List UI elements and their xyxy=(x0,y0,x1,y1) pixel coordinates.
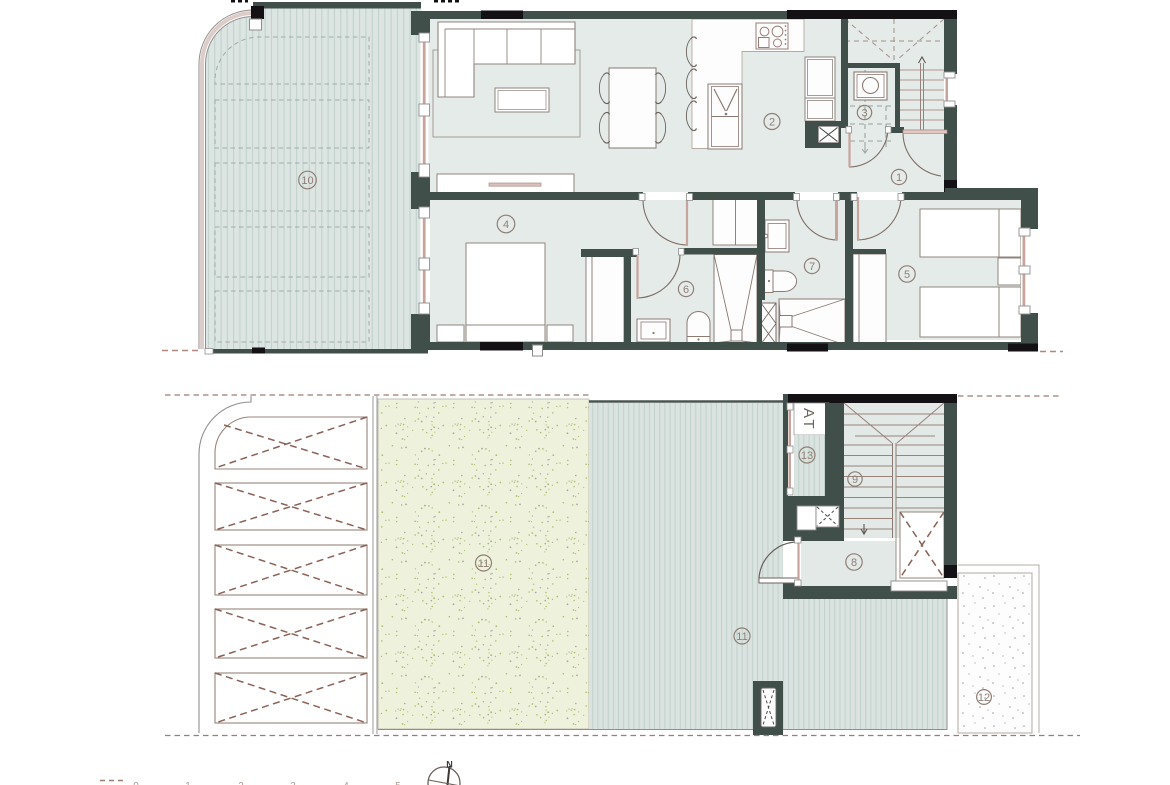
svg-text:11: 11 xyxy=(736,631,747,643)
svg-text:8: 8 xyxy=(851,557,857,569)
svg-text:1: 1 xyxy=(896,172,902,184)
svg-text:5: 5 xyxy=(904,269,910,281)
svg-text:4: 4 xyxy=(343,781,349,785)
svg-text:11: 11 xyxy=(478,558,489,570)
svg-text:0: 0 xyxy=(133,781,139,785)
svg-text:9: 9 xyxy=(852,474,858,486)
svg-text:N: N xyxy=(446,760,453,770)
svg-text:1: 1 xyxy=(185,781,191,785)
svg-text:7: 7 xyxy=(809,261,815,273)
svg-text:12: 12 xyxy=(978,692,990,704)
svg-text:13: 13 xyxy=(801,450,813,462)
svg-text:6: 6 xyxy=(683,284,689,296)
svg-text:AT: AT xyxy=(800,408,817,431)
svg-text:4: 4 xyxy=(503,219,509,231)
svg-text:3: 3 xyxy=(290,781,296,785)
svg-text:2: 2 xyxy=(769,117,775,129)
svg-text:10: 10 xyxy=(301,175,313,187)
svg-text:3: 3 xyxy=(861,108,867,120)
svg-text:5: 5 xyxy=(395,781,401,785)
svg-text:2: 2 xyxy=(238,781,244,785)
